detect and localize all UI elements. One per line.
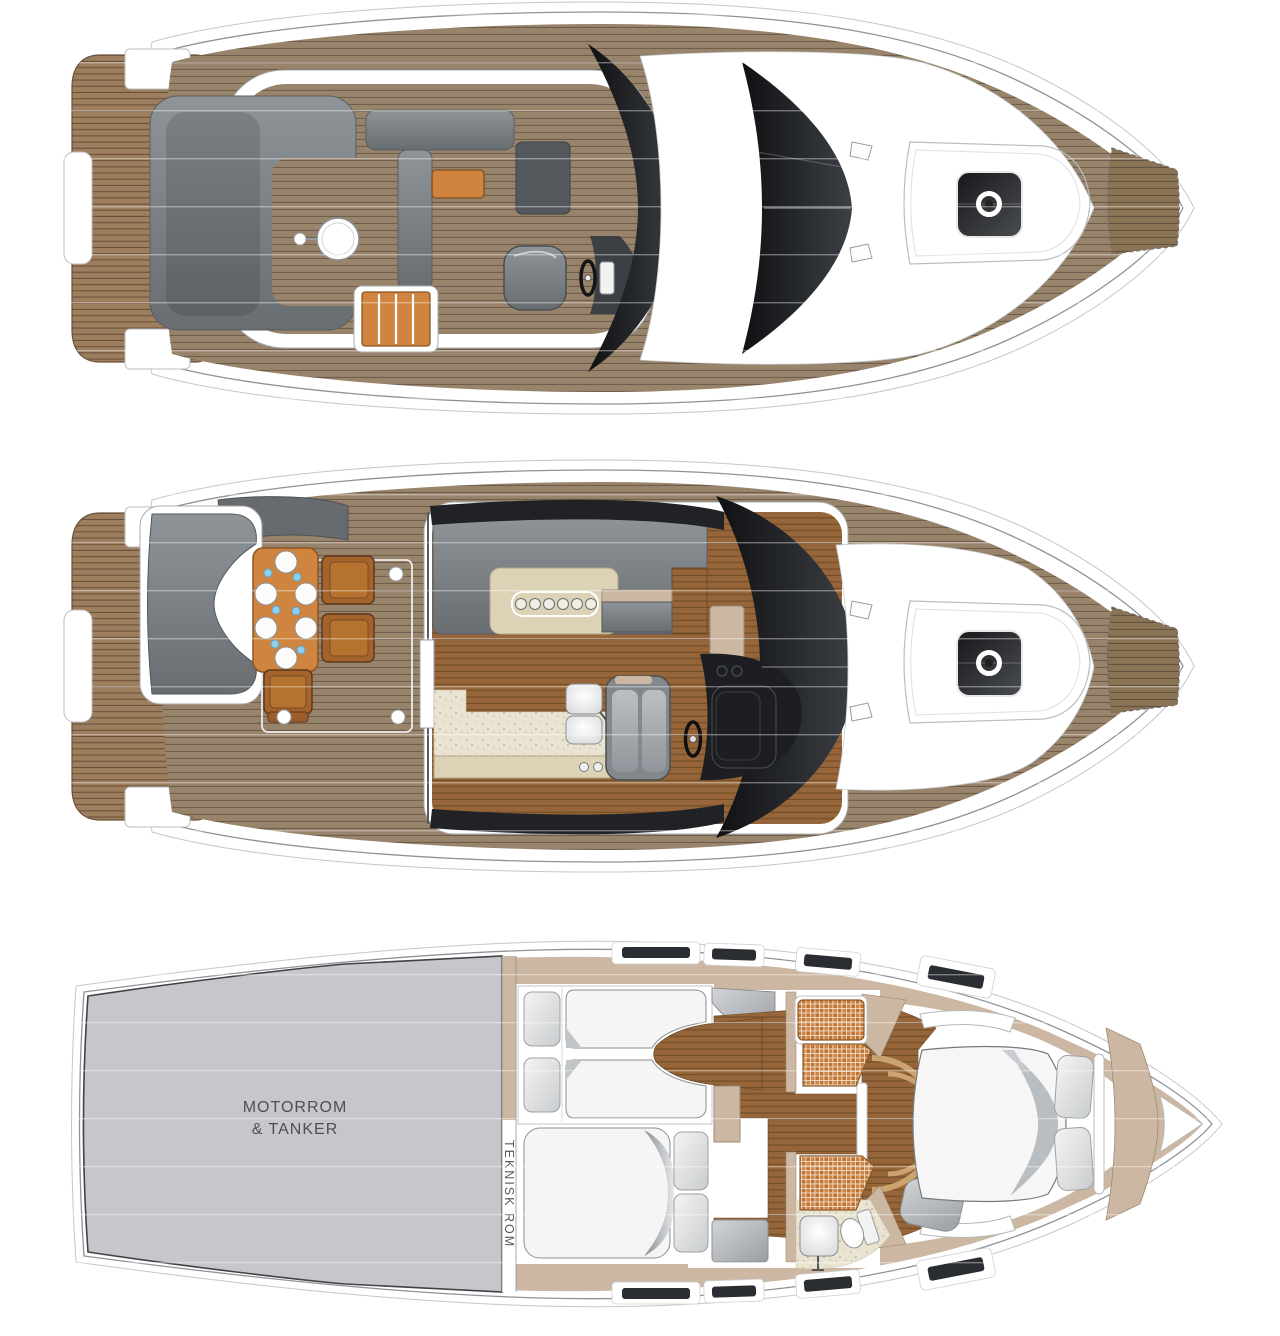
wet-bar-table bbox=[432, 170, 484, 198]
sideboard bbox=[516, 142, 570, 214]
salon-settee bbox=[602, 590, 672, 632]
platform-recess bbox=[64, 152, 92, 264]
pillow bbox=[1054, 1127, 1094, 1191]
anchor-locker bbox=[1108, 148, 1180, 254]
floor-mat bbox=[712, 1220, 768, 1262]
deck-hatch bbox=[957, 172, 1022, 237]
pillow bbox=[1054, 1055, 1094, 1119]
stairs-hatch bbox=[354, 286, 438, 352]
helm-bench bbox=[606, 676, 670, 780]
aft-sun-lounge bbox=[150, 96, 372, 330]
pillow bbox=[524, 1058, 560, 1112]
yacht-deck-plans: MOTORROM & TANKER TEKNISK ROM bbox=[0, 0, 1280, 1336]
helm-seat bbox=[504, 246, 566, 310]
washbasin bbox=[800, 1216, 838, 1256]
deck-plans-drawing: MOTORROM & TANKER TEKNISK ROM bbox=[0, 0, 1280, 1336]
master-door bbox=[857, 1083, 867, 1162]
shower-grate bbox=[798, 1000, 864, 1040]
main-deck-plan bbox=[64, 460, 1194, 872]
engine-room-label-line2: & TANKER bbox=[252, 1121, 339, 1138]
pillow bbox=[674, 1194, 708, 1252]
anchor-locker bbox=[1108, 607, 1180, 713]
double-bed bbox=[524, 1128, 670, 1258]
hull-window bbox=[622, 947, 690, 958]
hull-window bbox=[622, 1288, 690, 1299]
technical-room-corridor: TEKNISK ROM bbox=[502, 956, 516, 1292]
cabin-wall-stub bbox=[714, 1086, 740, 1142]
engine-room: MOTORROM & TANKER bbox=[84, 956, 503, 1292]
headboard-shelf bbox=[1094, 1054, 1104, 1194]
engine-room-label-line1: MOTORROM bbox=[243, 1099, 348, 1116]
lower-deck-plan: MOTORROM & TANKER TEKNISK ROM bbox=[72, 941, 1223, 1306]
pillow bbox=[674, 1132, 708, 1190]
deck-hatch bbox=[957, 631, 1022, 696]
technical-room-label: TEKNISK ROM bbox=[502, 1140, 516, 1248]
pillow bbox=[524, 992, 560, 1046]
flybridge-deck-plan bbox=[64, 2, 1194, 414]
transom-sofa bbox=[140, 506, 262, 704]
